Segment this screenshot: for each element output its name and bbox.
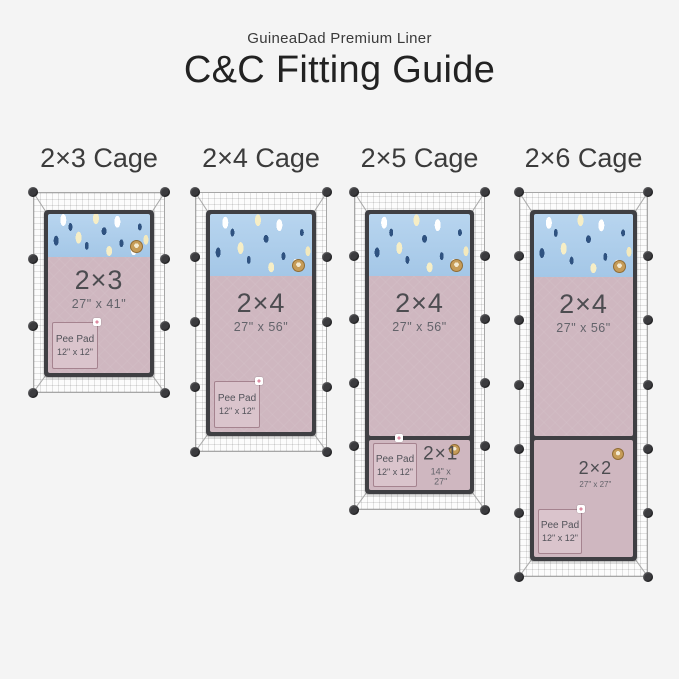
cage-2x3: 2×3 Cage 2×3 27" x 41" Pee Pad 12" x 12" [33,192,165,393]
fleece-pattern-top [369,214,470,276]
cage-title-2x4: 2×4 Cage [202,143,320,174]
liner-size-label: 2×4 [369,288,470,319]
cage-inner-frame: 2×4 27" x 56" Pee Pad 12" x 12" [206,210,316,436]
pee-pad-label: Pee Pad [376,454,414,465]
cage-title-2x6: 2×6 Cage [525,143,643,174]
fleece-pattern-top [210,214,312,276]
cage-title-2x3: 2×3 Cage [40,143,158,174]
connector-dot-icon [322,252,332,262]
guineadad-logo-badge-icon [450,259,463,272]
connector-dot-icon [160,321,170,331]
snap-button-icon [93,318,101,326]
sub-liner-dims-label: 14" x 27" [423,467,458,487]
connector-dot-icon [349,314,359,324]
connector-dot-icon [643,444,653,454]
pee-pad-dims-label: 12" x 12" [377,467,413,477]
cage-2x5: 2×5 Cage 2×4 27" x 56" 2×1 14" x 27" [354,192,485,510]
connector-dot-icon [480,314,490,324]
liner-body: 2×3 27" x 41" Pee Pad 12" x 12" [48,257,150,373]
connector-dot-icon [643,380,653,390]
pee-pad-dims-label: 12" x 12" [542,533,578,543]
fitting-guide-infographic: GuineaDad Premium Liner C&C Fitting Guid… [0,0,679,679]
liner-main: 2×4 27" x 56" [369,214,470,436]
connector-dot-icon [480,505,490,515]
liner-size-label: 2×4 [210,288,312,319]
connector-dot-icon [514,508,524,518]
cage-inner-frame: 2×4 27" x 56" 2×2 27" x 27" Pee Pad 12" … [530,210,637,561]
connector-dot-icon [190,187,200,197]
pee-pad: Pee Pad 12" x 12" [214,381,260,428]
connector-dot-icon [643,251,653,261]
connector-dot-icon [514,572,524,582]
liner-size-label: 2×4 [534,289,633,320]
connector-dot-icon [322,447,332,457]
guineadad-logo-badge-icon [292,259,305,272]
connector-dot-icon [160,254,170,264]
connector-dot-icon [349,441,359,451]
cage-inner-frame: 2×4 27" x 56" 2×1 14" x 27" Pee Pad 12" … [365,210,474,494]
sub-liner-text: 2×2 27" x 27" [579,458,613,489]
pee-pad-label: Pee Pad [218,393,256,404]
brand-subtitle: GuineaDad Premium Liner [0,30,679,47]
guineadad-logo-badge-icon [612,448,624,460]
guineadad-logo-badge-icon [613,260,626,273]
liner-dims-label: 27" x 56" [369,320,470,334]
liner-main: 2×3 27" x 41" Pee Pad 12" x 12" [48,214,150,373]
connector-dot-icon [514,444,524,454]
pee-pad-dims-label: 12" x 12" [57,347,93,357]
connector-dot-icon [160,388,170,398]
liner-body: 2×4 27" x 56" [534,277,633,436]
fleece-pattern-top [48,214,150,257]
sub-liner-dims-label: 27" x 27" [579,480,613,489]
connector-dot-icon [349,187,359,197]
liner-sub: 2×1 14" x 27" Pee Pad 12" x 12" [369,440,470,490]
liner-dims-label: 27" x 56" [210,320,312,334]
pee-pad: Pee Pad 12" x 12" [538,509,582,554]
sub-liner-size-label: 2×2 [579,458,613,479]
connector-dot-icon [514,315,524,325]
liner-size-label: 2×3 [48,265,150,296]
cage-inner-frame: 2×3 27" x 41" Pee Pad 12" x 12" [44,210,154,377]
connector-dot-icon [480,378,490,388]
liner-sub: 2×2 27" x 27" Pee Pad 12" x 12" [534,440,633,557]
page-title: C&C Fitting Guide [0,49,679,92]
connector-dot-icon [643,508,653,518]
connector-dot-icon [480,187,490,197]
connector-dot-icon [28,321,38,331]
connector-dot-icon [514,380,524,390]
sub-liner-text: 2×1 14" x 27" [423,444,458,487]
connector-dot-icon [190,447,200,457]
guineadad-logo-badge-icon [130,240,143,253]
cage-2x6: 2×6 Cage 2×4 27" x 56" 2×2 27" x 27" [519,192,648,577]
pee-pad: Pee Pad 12" x 12" [373,443,417,487]
pee-pad-label: Pee Pad [56,334,94,345]
connector-dot-icon [190,317,200,327]
connector-dot-icon [514,187,524,197]
connector-dot-icon [28,254,38,264]
sub-liner-size-label: 2×1 [423,444,458,466]
cage-2x4: 2×4 Cage 2×4 27" x 56" Pee Pad 12" x 12" [195,192,327,452]
connector-dot-icon [28,388,38,398]
liner-body: 2×4 27" x 56" [369,276,470,436]
connector-dot-icon [349,378,359,388]
connector-dot-icon [160,187,170,197]
snap-button-icon [395,434,403,442]
liner-body: 2×4 27" x 56" Pee Pad 12" x 12" [210,276,312,432]
snap-button-icon [255,377,263,385]
connector-dot-icon [643,187,653,197]
pee-pad-label: Pee Pad [541,520,579,531]
liner-dims-label: 27" x 41" [48,297,150,311]
connector-dot-icon [349,251,359,261]
connector-dot-icon [643,315,653,325]
connector-dot-icon [28,187,38,197]
connector-dot-icon [480,251,490,261]
pee-pad: Pee Pad 12" x 12" [52,322,98,369]
snap-button-icon [577,505,585,513]
connector-dot-icon [514,251,524,261]
fleece-pattern-top [534,214,633,277]
cage-title-2x5: 2×5 Cage [361,143,479,174]
connector-dot-icon [322,187,332,197]
connector-dot-icon [480,441,490,451]
connector-dot-icon [643,572,653,582]
connector-dot-icon [322,382,332,392]
connector-dot-icon [322,317,332,327]
liner-main: 2×4 27" x 56" Pee Pad 12" x 12" [210,214,312,432]
connector-dot-icon [190,252,200,262]
connector-dot-icon [190,382,200,392]
liner-dims-label: 27" x 56" [534,321,633,335]
liner-main: 2×4 27" x 56" [534,214,633,436]
pee-pad-dims-label: 12" x 12" [219,406,255,416]
connector-dot-icon [349,505,359,515]
